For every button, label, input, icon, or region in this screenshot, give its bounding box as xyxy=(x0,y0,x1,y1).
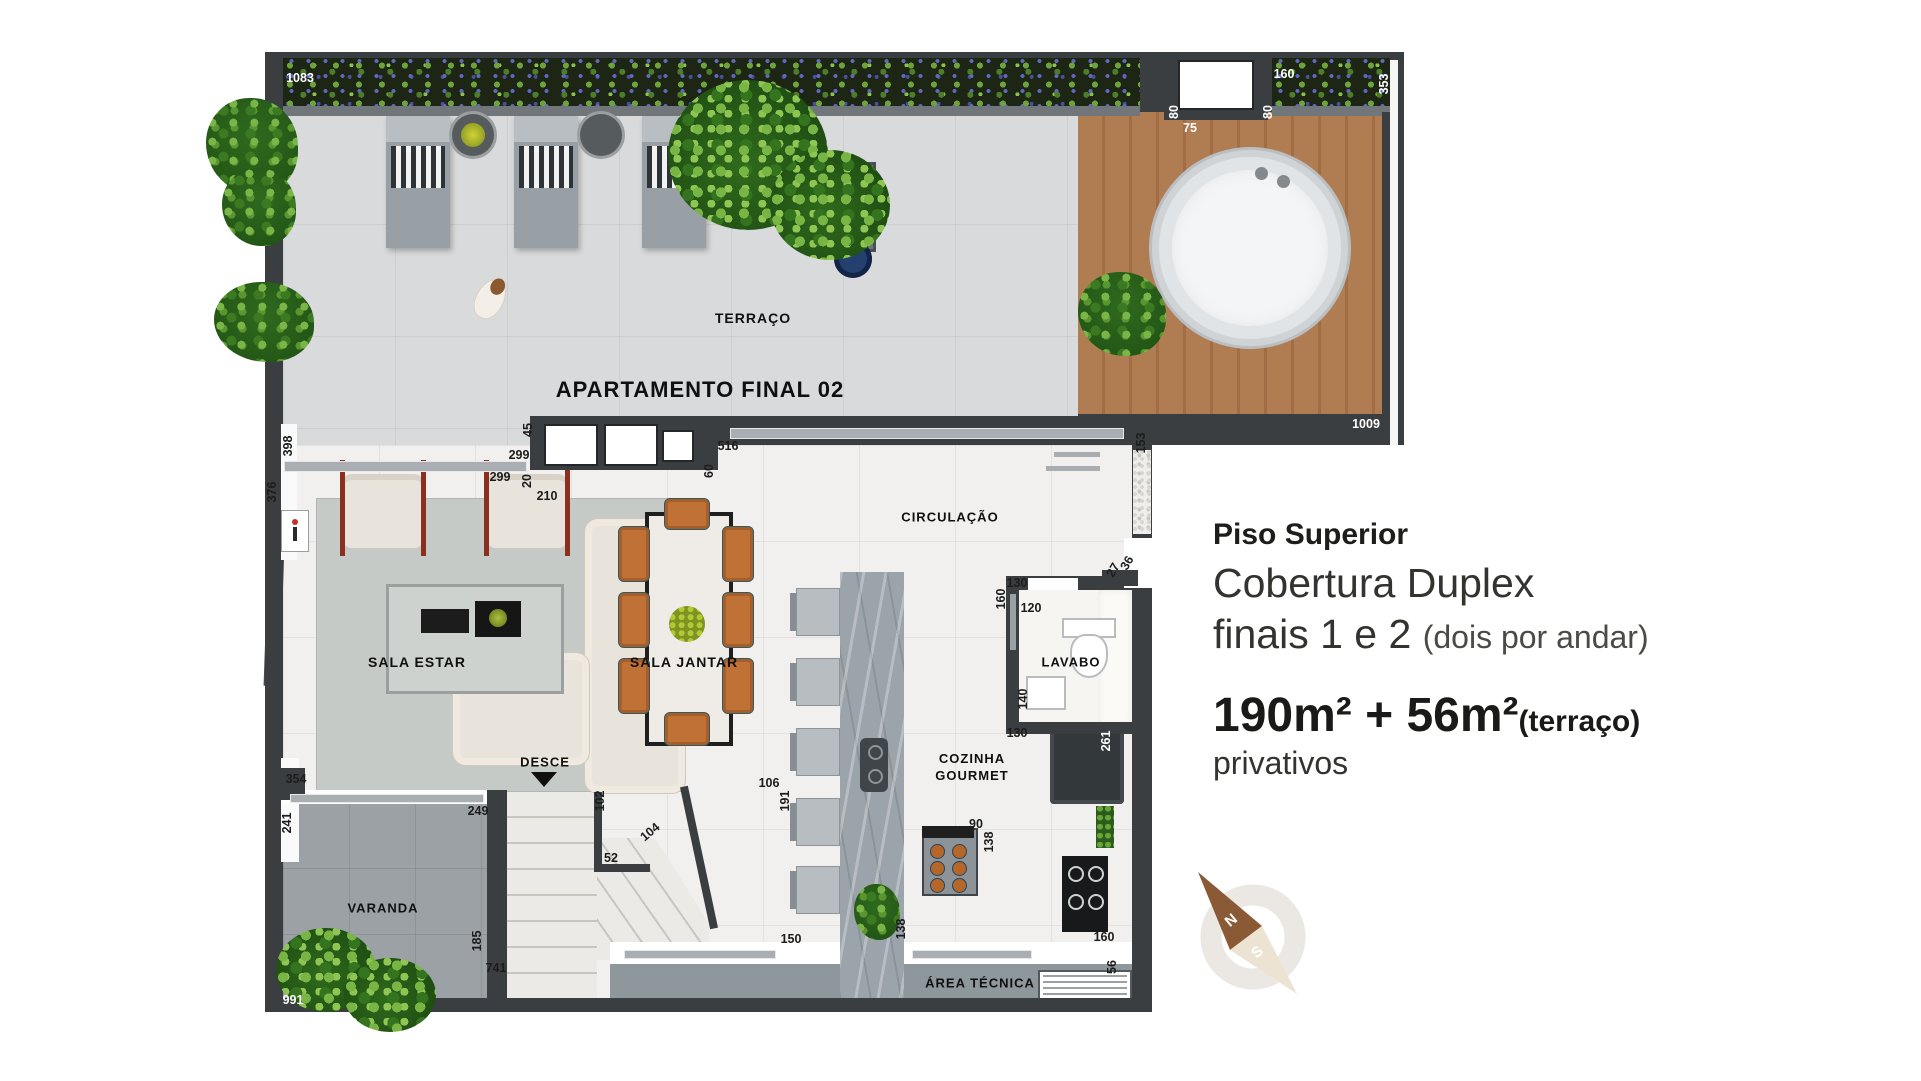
dimension-label-left-398: 398 xyxy=(281,436,295,457)
dimension-label-top-1083: 1083 xyxy=(286,71,314,85)
dimension-label-mid-299-a: 299 xyxy=(509,448,530,462)
info-area-value: 190m² + 56m² xyxy=(1213,689,1519,742)
dimension-label-right-353: 353 xyxy=(1377,74,1391,95)
dimension-label-stair-102: 102 xyxy=(593,791,607,812)
dimension-label-left-241: 241 xyxy=(280,813,294,834)
room-label-sala-estar: SALA ESTAR xyxy=(368,654,466,670)
dimension-label-mid-45: 45 xyxy=(521,423,535,437)
room-label-sala-jantar: SALA JANTAR xyxy=(630,654,738,670)
dimension-label-mid-299-b: 299 xyxy=(490,470,511,484)
dimension-label-mid-20: 20 xyxy=(520,474,534,488)
dimension-label-left-354: 354 xyxy=(286,772,307,786)
room-label-area-tecnica: ÁREA TÉCNICA xyxy=(925,976,1035,991)
room-label-lavabo: LAVABO xyxy=(1042,655,1101,670)
info-subtitle: Cobertura Duplex xyxy=(1213,560,1833,607)
dimension-label-bottom-138-a: 138 xyxy=(894,919,908,940)
dimension-label-mid-60: 60 xyxy=(702,464,716,478)
info-units-note: (dois por andar) xyxy=(1423,619,1649,655)
room-label-varanda: VARANDA xyxy=(347,901,418,916)
dimension-label-deck-1009: 1009 xyxy=(1352,417,1380,431)
dimension-label-right-153: 153 xyxy=(1134,433,1148,454)
dimension-label-kitchen-106: 106 xyxy=(759,776,780,790)
dimension-label-varanda-741: 741 xyxy=(486,961,507,975)
info-area-caption: privativos xyxy=(1213,745,1833,782)
dimension-label-win-80-left: 80 xyxy=(1167,105,1181,119)
dimension-label-lav-140: 140 xyxy=(1016,689,1030,710)
info-units-line: finais 1 e 2 (dois por andar) xyxy=(1213,611,1833,658)
dimension-label-mid-210: 210 xyxy=(537,489,558,503)
room-label-desce: DESCE xyxy=(520,755,570,770)
info-title: Piso Superior xyxy=(1213,518,1833,552)
room-label-terraco: TERRAÇO xyxy=(715,310,791,326)
dimension-label-lav-160: 160 xyxy=(994,589,1008,610)
room-label-apartamento: APARTAMENTO FINAL 02 xyxy=(556,377,845,403)
dimension-label-varanda-249: 249 xyxy=(468,804,489,818)
room-label-cozinha-gourmet: COZINHA GOURMET xyxy=(917,751,1027,785)
dimension-label-left-991: 991 xyxy=(283,993,304,1007)
dimension-label-kitchen-191: 191 xyxy=(778,791,792,812)
dimension-label-win-160: 160 xyxy=(1274,67,1295,81)
compass-rose: N S xyxy=(1185,868,1325,1008)
dimension-label-table-90: 90 xyxy=(969,817,983,831)
dimension-label-bottom-56: 56 xyxy=(1105,960,1119,974)
info-area-line: 190m² + 56m²(terraço) xyxy=(1213,688,1833,743)
dimension-label-right-261: 261 xyxy=(1099,731,1113,752)
dimension-label-left-376: 376 xyxy=(265,482,279,503)
info-area-note: (terraço) xyxy=(1519,705,1641,738)
dimension-label-bottom-150: 150 xyxy=(781,932,802,946)
dimension-label-lav-130-top: 130 xyxy=(1007,576,1028,590)
room-label-circulacao: CIRCULAÇÃO xyxy=(901,510,998,525)
dimension-label-stair-104: 104 xyxy=(638,820,663,844)
dimension-label-lav-130-bottom: 130 xyxy=(1007,726,1028,740)
stairs-down-arrow xyxy=(531,772,557,787)
dimension-label-bottom-160: 160 xyxy=(1094,930,1115,944)
dimension-label-stair-52: 52 xyxy=(604,851,618,865)
dimension-label-table-138: 138 xyxy=(982,832,996,853)
info-units: finais 1 e 2 xyxy=(1213,611,1411,657)
dimension-label-win-75: 75 xyxy=(1183,121,1197,135)
floorplan-page: TERRAÇOAPARTAMENTO FINAL 02CIRCULAÇÃOSAL… xyxy=(0,0,1921,1081)
dimension-label-win-80-right: 80 xyxy=(1261,105,1275,119)
dimension-label-mid-516: 516 xyxy=(718,439,739,453)
info-panel: Piso Superior Cobertura Duplex finais 1 … xyxy=(1213,518,1833,782)
dimension-label-varanda-185: 185 xyxy=(470,931,484,952)
dimension-label-lav-120: 120 xyxy=(1021,601,1042,615)
